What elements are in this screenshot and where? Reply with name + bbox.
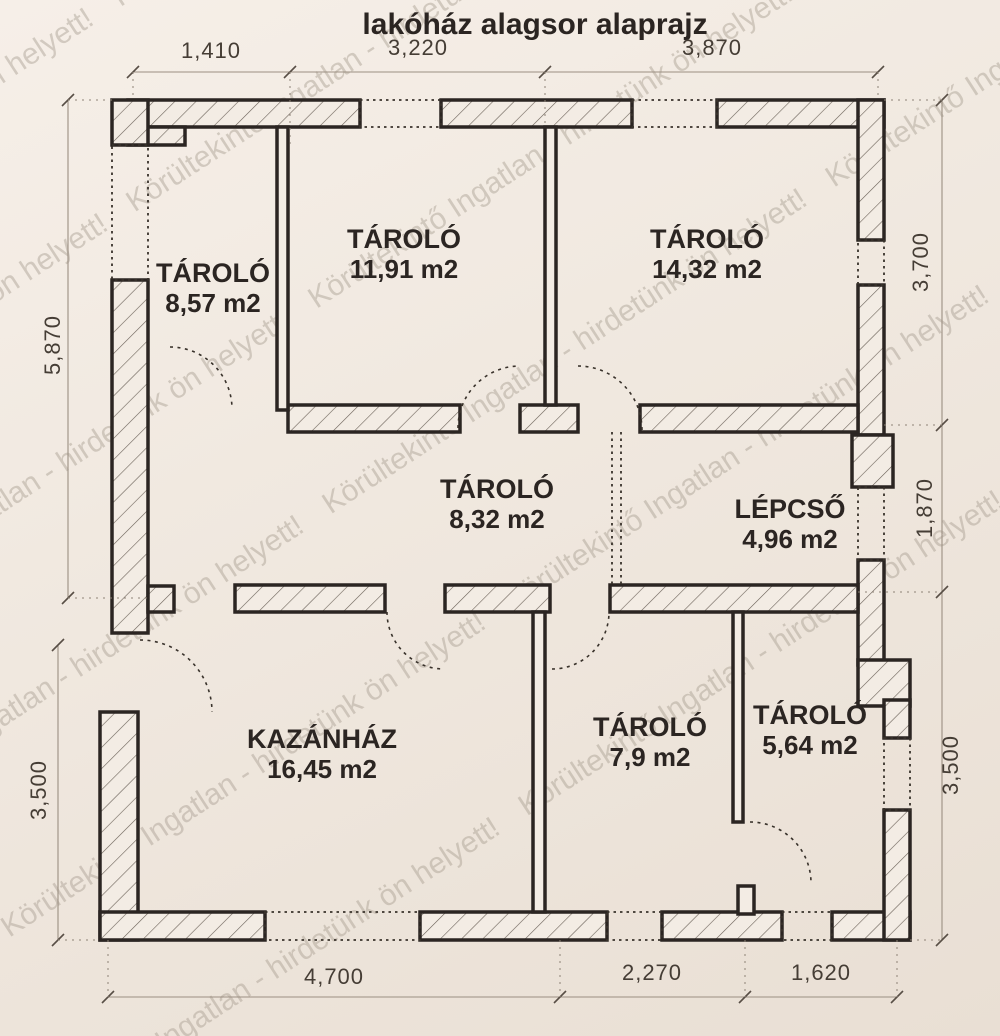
dim-top-2: 3,220 (388, 35, 448, 60)
room-area-tarolo-564: 5,64 m2 (762, 730, 857, 760)
room-name-tarolo-1191: TÁROLÓ (347, 223, 461, 254)
wall-segment (235, 585, 385, 612)
window-opening (782, 912, 832, 940)
window-opening (858, 487, 884, 560)
wall-segment (662, 912, 782, 940)
wall-segment (100, 912, 265, 940)
wall-segment (520, 405, 578, 432)
window-opening (360, 100, 441, 127)
wall-segment (288, 405, 460, 432)
dim-top-3: 3,870 (682, 35, 742, 60)
wall-segment (884, 810, 910, 940)
room-area-tarolo-832: 8,32 m2 (449, 504, 544, 534)
wall-segment (148, 586, 174, 612)
wall-segment (445, 585, 550, 612)
wall-segment (640, 405, 858, 432)
door-arc (552, 612, 609, 669)
room-name-tarolo-79: TÁROLÓ (593, 711, 707, 742)
window-opening (607, 912, 662, 940)
window-opening (884, 738, 910, 810)
dim-right-2: 1,870 (912, 478, 937, 538)
door-arc (578, 366, 642, 430)
floor-plan-drawing: Körültekintő Ingatlan - hirdetünk ön hel… (0, 0, 1000, 1036)
room-area-tarolo-1191: 11,91 m2 (350, 254, 458, 284)
partition-wall (545, 127, 556, 405)
room-name-tarolo-857: TÁROLÓ (156, 257, 270, 288)
room-name-tarolo-564: TÁROLÓ (753, 699, 867, 730)
partition-wall (733, 612, 743, 822)
room-area-lepcso: 4,96 m2 (742, 524, 837, 554)
wall-segment (128, 100, 360, 127)
room-area-kazanhaz: 16,45 m2 (267, 754, 377, 784)
watermark-text: Körültekintő Ingatlan - hirdetünk ön hel… (820, 0, 1000, 194)
partition-wall (533, 612, 545, 912)
room-area-tarolo-857: 8,57 m2 (165, 288, 260, 318)
wall-pillar (738, 886, 754, 914)
wall-segment (112, 280, 148, 633)
wall-segment (610, 585, 858, 612)
room-name-lepcso: LÉPCSŐ (734, 493, 845, 524)
room-name-tarolo-1432: TÁROLÓ (650, 223, 764, 254)
dim-right-3: 3,500 (938, 735, 963, 795)
room-name-tarolo-832: TÁROLÓ (440, 473, 554, 504)
room-labels: TÁROLÓ 8,57 m2 TÁROLÓ 11,91 m2 TÁROLÓ 14… (156, 223, 867, 784)
wall-segment (858, 285, 884, 435)
wall-segment (884, 700, 910, 738)
room-name-kazanhaz: KAZÁNHÁZ (247, 723, 397, 754)
partition-wall (277, 127, 288, 410)
dim-left-1: 5,870 (40, 315, 65, 375)
door-arc (140, 640, 212, 712)
dim-bottom-2: 2,270 (622, 960, 682, 985)
wall-segment (858, 100, 884, 240)
room-area-tarolo-79: 7,9 m2 (610, 742, 691, 772)
wall-segment (441, 100, 632, 127)
door-arc (750, 822, 811, 883)
wall-segment (112, 100, 148, 145)
dim-right-1: 3,700 (908, 232, 933, 292)
dim-bottom-1: 4,700 (304, 964, 364, 989)
room-area-tarolo-1432: 14,32 m2 (652, 254, 762, 284)
wall-segment (420, 912, 607, 940)
dim-left-2: 3,500 (26, 760, 51, 820)
dim-top-1: 1,410 (181, 38, 241, 63)
wall-segment (858, 560, 884, 665)
window-opening (858, 240, 884, 285)
wall-segment (100, 712, 138, 940)
dim-bottom-3: 1,620 (791, 960, 851, 985)
wall-segment (852, 435, 893, 487)
